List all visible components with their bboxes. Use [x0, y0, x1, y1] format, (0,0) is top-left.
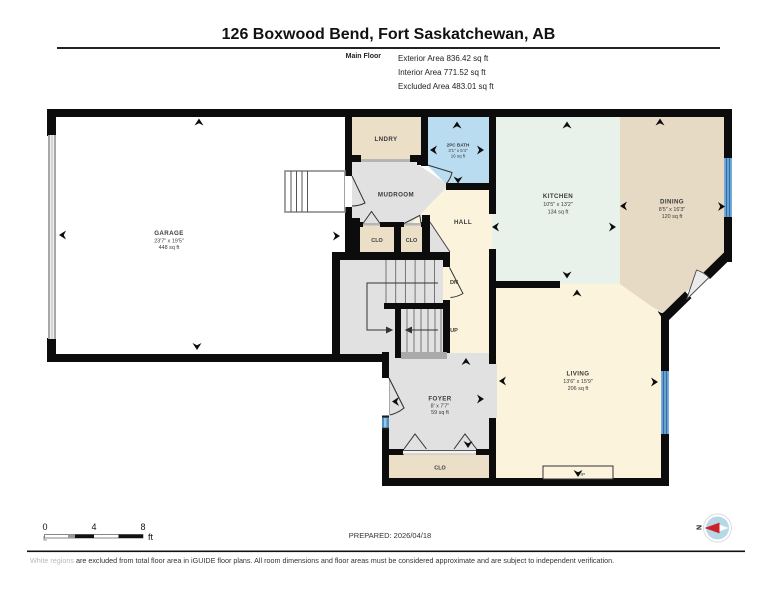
svg-text:CLO: CLO	[434, 466, 445, 472]
svg-text:CLO: CLO	[371, 238, 382, 244]
svg-text:N: N	[696, 525, 703, 530]
svg-text:DN: DN	[450, 280, 458, 286]
svg-text:ft: ft	[148, 532, 154, 542]
svg-text:HALL: HALL	[454, 219, 472, 226]
svg-text:16 sq ft: 16 sq ft	[451, 153, 466, 158]
svg-text:UP: UP	[450, 328, 458, 334]
svg-text:8'5" x 16'3": 8'5" x 16'3"	[659, 207, 686, 213]
svg-text:23'7" x 19'5": 23'7" x 19'5"	[154, 239, 184, 245]
svg-text:120 sq ft: 120 sq ft	[662, 214, 683, 220]
svg-text:MUDROOM: MUDROOM	[378, 192, 414, 199]
svg-text:PREPARED: 2026/04/18: PREPARED: 2026/04/18	[349, 531, 431, 540]
svg-text:2PC BATH: 2PC BATH	[447, 143, 470, 148]
svg-text:CLO: CLO	[406, 238, 417, 244]
svg-text:LIVING: LIVING	[566, 371, 589, 378]
svg-text:448 sq ft: 448 sq ft	[159, 245, 180, 251]
svg-text:134 sq ft: 134 sq ft	[548, 209, 569, 215]
svg-text:13'6" x 15'9": 13'6" x 15'9"	[563, 379, 593, 385]
svg-text:KITCHEN: KITCHEN	[543, 193, 573, 200]
svg-text:4: 4	[91, 522, 96, 532]
svg-text:DINING: DINING	[660, 199, 684, 206]
svg-text:White regions are excluded fro: White regions are excluded from total fl…	[30, 556, 614, 565]
svg-text:LNDRY: LNDRY	[374, 136, 398, 143]
svg-text:206 sq ft: 206 sq ft	[568, 386, 589, 392]
svg-text:10'5" x 13'2": 10'5" x 13'2"	[543, 202, 573, 208]
svg-text:8: 8	[140, 522, 145, 532]
svg-text:3'1" x 5'4": 3'1" x 5'4"	[448, 148, 468, 153]
svg-text:FOYER: FOYER	[428, 396, 451, 403]
svg-text:0: 0	[42, 522, 47, 532]
svg-text:8' x 7'7": 8' x 7'7"	[431, 404, 450, 410]
svg-text:GARAGE: GARAGE	[154, 230, 184, 237]
svg-text:59 sq ft: 59 sq ft	[431, 410, 449, 416]
